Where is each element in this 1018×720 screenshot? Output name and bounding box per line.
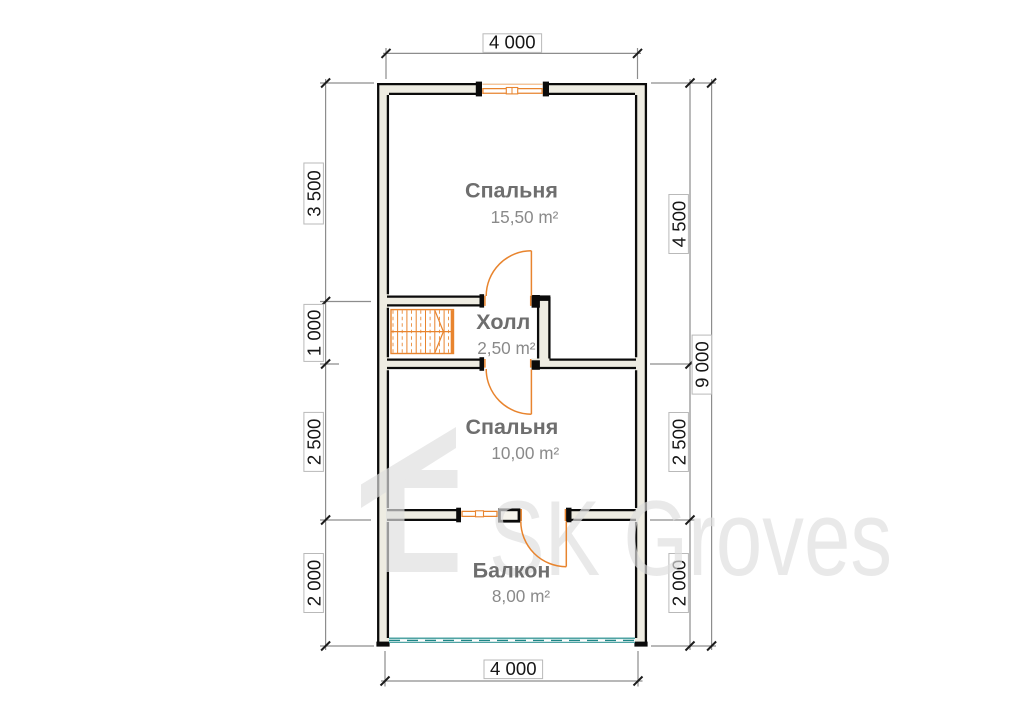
svg-text:Спальня: Спальня <box>465 179 558 203</box>
svg-text:Холл: Холл <box>476 310 530 334</box>
svg-text:15,50 m²: 15,50 m² <box>491 207 559 227</box>
svg-text:2 500: 2 500 <box>668 419 689 466</box>
svg-text:4 500: 4 500 <box>668 201 689 248</box>
svg-text:2 000: 2 000 <box>303 560 324 607</box>
svg-text:Спальня: Спальня <box>465 415 558 439</box>
svg-text:4 000: 4 000 <box>489 32 536 53</box>
svg-text:8,00 m²: 8,00 m² <box>492 586 551 606</box>
svg-text:Балкон: Балкон <box>473 559 551 583</box>
svg-text:1 000: 1 000 <box>303 310 324 357</box>
svg-text:3 500: 3 500 <box>303 170 324 217</box>
svg-text:2 500: 2 500 <box>303 419 324 466</box>
svg-text:2,50 m²: 2,50 m² <box>477 338 536 358</box>
svg-text:10,00 m²: 10,00 m² <box>491 443 559 463</box>
svg-text:4 000: 4 000 <box>490 658 537 679</box>
svg-text:9 000: 9 000 <box>692 341 713 388</box>
